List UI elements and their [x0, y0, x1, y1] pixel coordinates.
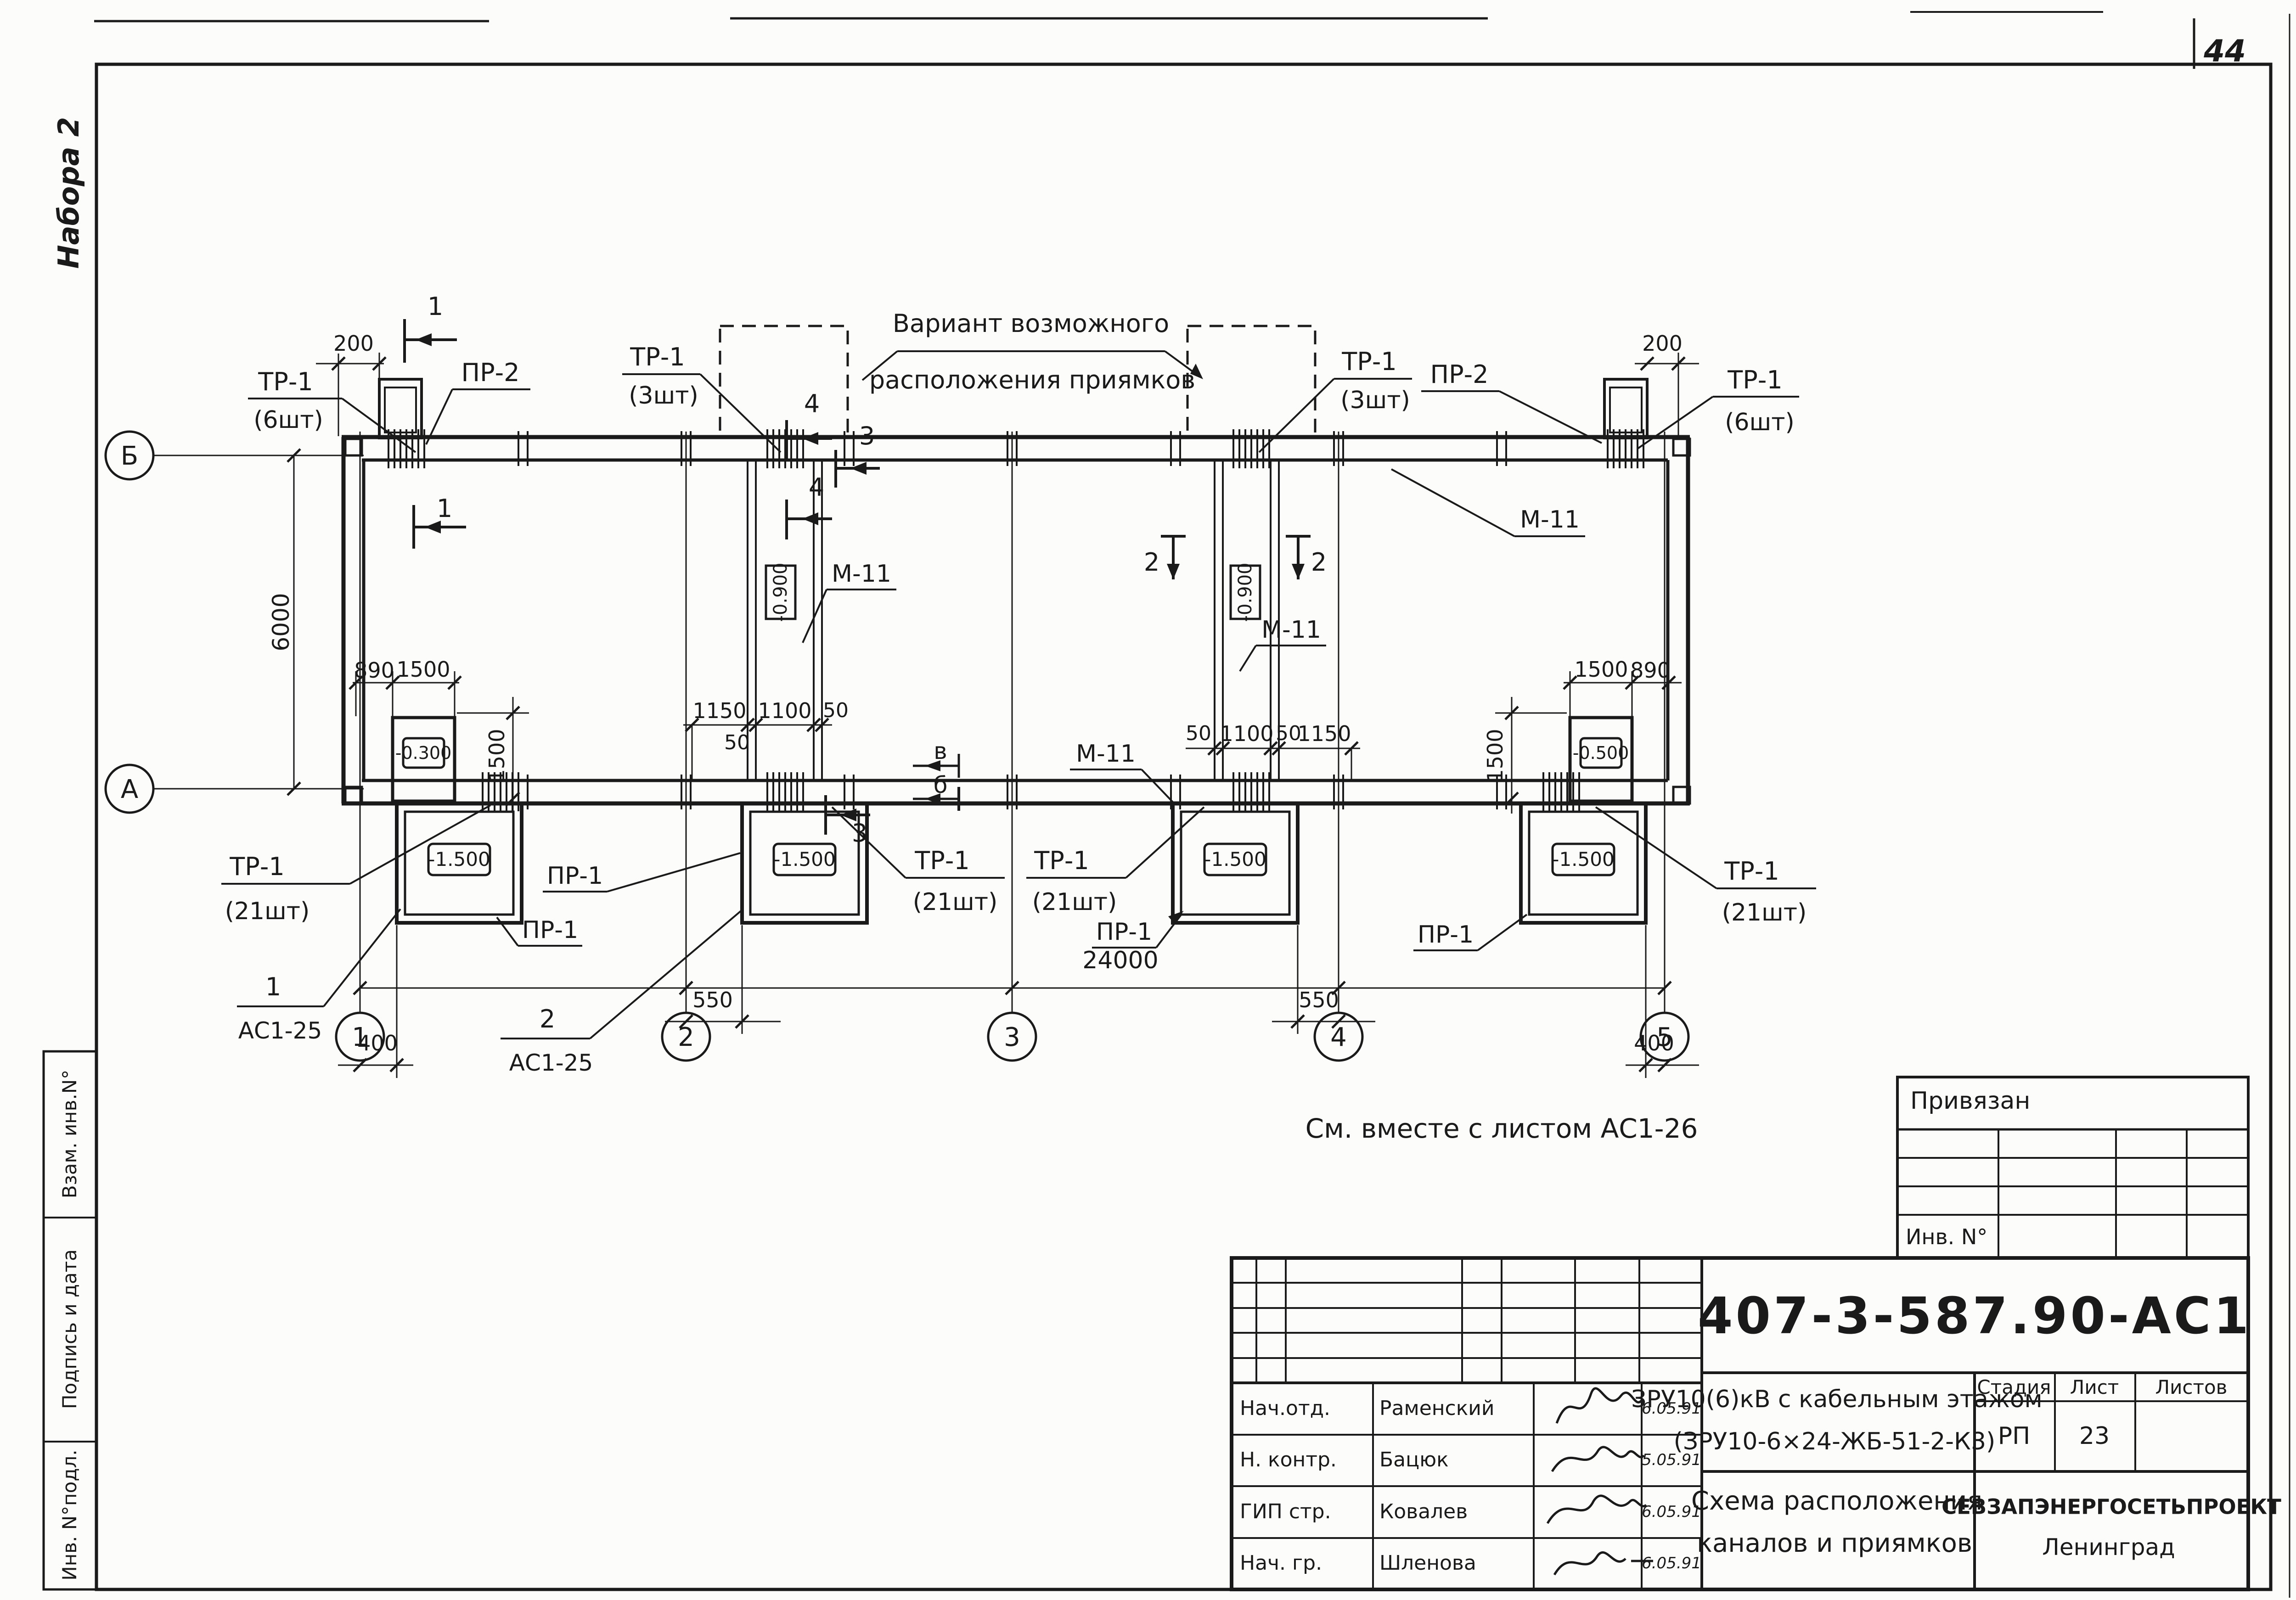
dim-890-right: 890: [1630, 660, 1671, 681]
signatory-name-3: Ковалев: [1379, 1502, 1468, 1522]
signatory-date-3: 6.05.91: [1642, 1504, 1701, 1520]
signatory-name-1: Раменский: [1379, 1398, 1495, 1419]
dim-550-right: 550: [1299, 989, 1339, 1011]
dim-400-left: 400: [357, 1033, 398, 1054]
m11-label-2: М-11: [1520, 508, 1580, 532]
signatory-role-4: Нач. гр.: [1240, 1553, 1322, 1573]
variant-note-line2: расположения приямков: [869, 368, 1195, 393]
elevation-0300: -0.300: [395, 744, 452, 762]
detail-ref-2-num: 2: [540, 1007, 555, 1032]
pr1-label-3: ПР-1: [1096, 920, 1152, 944]
signatory-role-1: Нач.отд.: [1240, 1398, 1330, 1419]
tr1-6-left-qty: (6шт): [253, 408, 323, 432]
elevation-0900-1: -0.900: [771, 563, 790, 622]
section-mark-4-bottom: 4: [809, 475, 824, 500]
signatory-name-2: Бацюк: [1379, 1450, 1449, 1470]
elevation-1500-4: -1.500: [1552, 850, 1614, 869]
pr1-label-2: ПР-1: [547, 864, 603, 888]
tr1-21-qty-4: (21шт): [1722, 901, 1807, 925]
tr1-21-qty-3: (21шт): [1032, 890, 1117, 914]
dim-890-left: 890: [354, 660, 394, 681]
org-city: Ленинград: [2042, 1536, 2175, 1559]
elevation-0900-2: -0.900: [1236, 563, 1255, 622]
drawing-sheet: 44 Набора 2 Взам. инв.N° Подпись и дата …: [0, 0, 2296, 1600]
see-note: См. вместе с листом АС1-26: [1306, 1115, 1698, 1142]
detail-ref-1-num: 1: [265, 975, 281, 999]
elevation-0500: -0.500: [1573, 744, 1629, 762]
dim-200-left: 200: [333, 333, 374, 354]
drawing-linework: [0, 0, 2296, 1600]
dim-24000: 24000: [1082, 949, 1158, 972]
axis-letter-a: А: [121, 777, 138, 803]
leader-lines: [221, 351, 1816, 1039]
signatory-date-1: 6.05.91: [1642, 1401, 1701, 1416]
m11-label-1: М-11: [832, 562, 891, 586]
object-title-line2: (ЗРУ10-6×24-ЖБ-51-2-К3): [1674, 1430, 1996, 1454]
tr1-21-label-1: ТР-1: [230, 854, 284, 879]
axis-number-2: 2: [678, 1025, 694, 1050]
tr1-3-center-label: ТР-1: [630, 345, 685, 370]
dim-1500-vert-left: 1500: [486, 729, 507, 782]
signatory-name-4: Шленова: [1379, 1553, 1476, 1573]
section-mark-1-bottom: 1: [437, 496, 452, 521]
elevation-1500-3: -1.500: [1204, 850, 1266, 869]
tr1-3-right-label: ТР-1: [1342, 349, 1396, 374]
section-mark-4-top: 4: [804, 392, 820, 416]
signatory-date-4: 6.05.91: [1642, 1555, 1701, 1571]
dim-200-right: 200: [1642, 333, 1683, 354]
stage-value: РП: [1998, 1424, 2030, 1448]
dim-1500-right: 1500: [1574, 659, 1628, 680]
page-number: 44: [2204, 36, 2246, 67]
side-label-vzam: Взам. инв.N°: [60, 1070, 79, 1199]
dim-1150-right: 1150: [1297, 723, 1351, 744]
section-mark-b: б: [934, 774, 948, 797]
signatory-role-2: Н. контр.: [1240, 1450, 1337, 1470]
sheet-title-line1: Схема расположения: [1691, 1488, 1982, 1514]
dim-1500-vert-right: 1500: [1485, 729, 1506, 782]
section-mark-v: в: [934, 740, 947, 763]
dim-400-right: 400: [1634, 1033, 1674, 1054]
elevation-1500-2: -1.500: [773, 850, 835, 869]
m11-label-3: М-11: [1076, 742, 1136, 766]
dim-50-below: 50: [724, 733, 750, 753]
tr1-21-label-4: ТР-1: [1724, 859, 1779, 884]
attachment-inv-label: Инв. N°: [1906, 1226, 1987, 1247]
side-label-inv: Инв. N°подл.: [60, 1449, 79, 1580]
sheet-value: 23: [2079, 1424, 2110, 1448]
section-mark-3-bottom: 3: [852, 821, 867, 846]
elevation-1500-1: -1.500: [428, 850, 490, 869]
tr1-21-label-2: ТР-1: [915, 848, 969, 873]
tr1-3-right-qty: (3шт): [1340, 388, 1410, 412]
sheets-header: Листов: [2155, 1378, 2228, 1397]
dim-50-left: 50: [823, 701, 849, 721]
dim-1100-right: 1100: [1220, 723, 1273, 744]
pr1-label-1: ПР-1: [522, 918, 578, 942]
signatory-role-3: ГИП стр.: [1240, 1502, 1331, 1522]
axis-number-4: 4: [1330, 1025, 1347, 1050]
detail-ref-1-sheet: АС1-25: [238, 1019, 322, 1042]
tr1-6-right-label: ТР-1: [1728, 368, 1782, 393]
section-mark-2-right: 2: [1311, 550, 1327, 575]
tr1-21-qty-1: (21шт): [225, 899, 310, 923]
dim-1150-left: 1150: [692, 700, 746, 721]
stage-header: Стадия: [1977, 1378, 2051, 1397]
sheet-title-line2: каналов и приямков: [1697, 1531, 1972, 1556]
org-name: СЕВЗАПЭНЕРГОСЕТЬПРОЕКТ: [1941, 1497, 2281, 1517]
doc-number: 407-3-587.90-АС1: [1698, 1291, 2251, 1341]
dim-550-left: 550: [692, 989, 733, 1011]
tr1-6-right-qty: (6шт): [1725, 410, 1795, 434]
section-mark-2-left: 2: [1144, 550, 1159, 575]
pits: [379, 326, 1647, 923]
tr1-6-left-label: ТР-1: [258, 370, 313, 394]
dim-6000: 6000: [270, 593, 293, 651]
pr1-label-4: ПР-1: [1418, 923, 1474, 947]
side-label-podpis: Подпись и дата: [60, 1249, 79, 1409]
dim-1100-left: 1100: [758, 700, 811, 721]
sheet-header: Лист: [2070, 1378, 2119, 1397]
pr2-right-label: ПР-2: [1430, 362, 1488, 387]
corner-stamp: Набора 2: [55, 117, 83, 269]
dim-1500-left: 1500: [396, 659, 450, 680]
section-mark-3-top: 3: [859, 424, 875, 449]
wall-hatch-marks: [388, 429, 1643, 811]
frame-border: [44, 64, 2271, 1589]
dim-50-right-a: 50: [1186, 724, 1211, 744]
tr1-21-qty-2: (21шт): [913, 890, 998, 914]
variant-note-line1: Вариант возможного: [893, 311, 1169, 336]
axis-letter-b: Б: [121, 444, 138, 469]
detail-ref-2-sheet: АС1-25: [509, 1051, 593, 1074]
section-mark-1-top: 1: [428, 294, 443, 319]
signature-scribbles: [1548, 1388, 1653, 1575]
tr1-21-label-3: ТР-1: [1034, 848, 1089, 873]
axis-number-3: 3: [1004, 1025, 1020, 1050]
attachment-title: Привязан: [1910, 1089, 2030, 1113]
pr2-left-label: ПР-2: [461, 360, 519, 385]
m11-label-4: М-11: [1261, 618, 1321, 642]
signatory-date-2: 5.05.91: [1642, 1452, 1701, 1468]
tr1-3-center-qty: (3шт): [629, 384, 698, 408]
